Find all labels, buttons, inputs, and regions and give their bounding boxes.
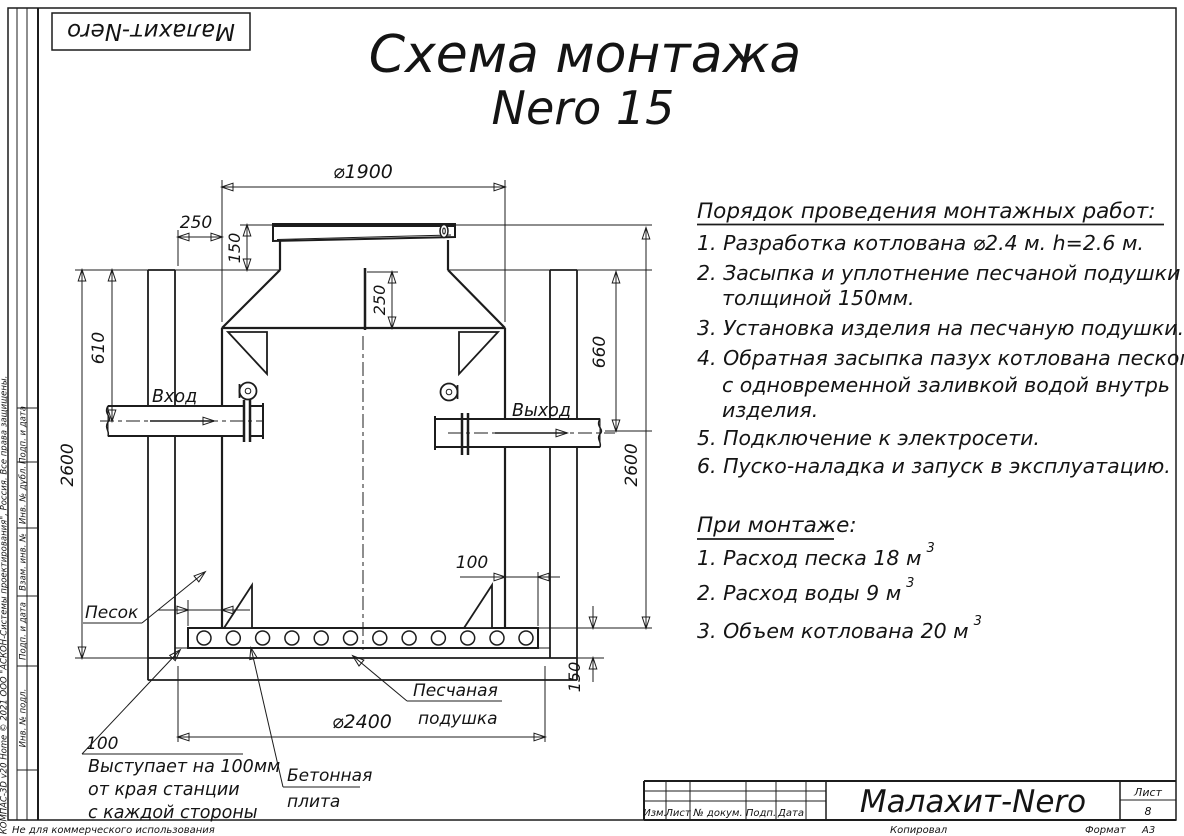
- during-item: 2. Расход воды 9 м3: [697, 576, 914, 605]
- instruction-line: 5. Подключение к электросети.: [697, 426, 1040, 450]
- dim-cushion-thickness: 150: [565, 662, 584, 693]
- lifting-eye-left: [240, 383, 257, 400]
- dim-pit-depth-left: 2600: [58, 443, 78, 486]
- col-sign: Подп.: [746, 808, 776, 819]
- during-item-sup: 3: [974, 614, 982, 629]
- dim-lid-height: 150: [225, 233, 244, 264]
- instruction-line: 6. Пуско-наладка и запуск в эксплуатацию…: [697, 454, 1171, 478]
- stamp-cell-label: Подп. и дата: [19, 406, 29, 464]
- drawing-title: Схема монтажа Nero 15: [369, 25, 802, 135]
- tank-lid: [273, 224, 455, 241]
- plate-label-1: Бетонная: [287, 766, 372, 786]
- sand-backfill-left: [175, 270, 280, 648]
- instruction-line: 1. Разработка котлована ⌀2.4 м. h=2.6 м.: [697, 231, 1144, 255]
- earth-floor: [148, 658, 577, 680]
- instruction-line: изделия.: [722, 398, 818, 422]
- gusset-upper-right: [459, 332, 498, 374]
- during-heading: При монтаже:: [697, 513, 857, 538]
- col-date: Дата: [777, 808, 804, 819]
- during-item: 1. Расход песка 18 м3: [697, 541, 935, 570]
- stamp-cell-label: Инв. № подл.: [19, 689, 29, 748]
- inlet-pipe: Вход: [100, 387, 263, 442]
- software-copyright: КОМПАС-3D v20 Home © 2021 ООО "АСКОН-Сис…: [0, 376, 10, 835]
- logo-stamp: Малахит-Nero: [52, 13, 250, 50]
- title-line-1: Схема монтажа: [369, 25, 802, 85]
- gusset-upper-left: [228, 332, 267, 374]
- col-doc: № докум.: [692, 808, 742, 819]
- dim-pit-diameter: ⌀2400: [332, 711, 392, 733]
- logo-text: Малахит-Nero: [67, 18, 235, 44]
- col-izm: Изм.: [643, 808, 667, 819]
- dim-plate-overhang: 100: [456, 553, 488, 573]
- dim-neck-depth: 250: [370, 285, 389, 316]
- leader-labels: Песок Песчаная подушка Бетонная плита 10…: [82, 572, 502, 823]
- overhang-note-3: с каждой стороны: [88, 803, 258, 823]
- col-list: Лист: [664, 808, 692, 819]
- sheet-number: 8: [1145, 805, 1152, 818]
- title-line-2: Nero 15: [492, 81, 675, 135]
- overhang-note-2: от края станции: [88, 780, 240, 800]
- sand-backfill-right: [448, 270, 550, 648]
- gusset-lower-left: [224, 585, 252, 628]
- overhang-note-1: Выступает на 100мм: [88, 757, 280, 777]
- dim-top-diameter: ⌀1900: [333, 161, 393, 183]
- format-label: Формат: [1085, 825, 1127, 836]
- lid-handle: [440, 225, 448, 238]
- tank-shoulder-right: [448, 270, 505, 328]
- instruction-line: толщиной 150мм.: [722, 286, 915, 310]
- dim-pit-depth-right: 2600: [622, 443, 642, 486]
- installation-instructions: Порядок проведения монтажных работ: 1. Р…: [697, 199, 1184, 643]
- lifting-eye-right: [441, 384, 458, 401]
- dim-backfill-width: 250: [180, 213, 212, 233]
- outlet-pipe: Выход: [435, 401, 615, 455]
- plate-rebar: [197, 631, 533, 645]
- cushion-label-2: подушка: [418, 709, 498, 729]
- stamp-cell-label: Подп. и дата: [19, 602, 29, 660]
- stamp-column: Подп. и дата Инв. № дубл. Взам. инв. № П…: [0, 376, 29, 835]
- tank-shoulder-left: [222, 270, 280, 328]
- during-item-sup: 3: [926, 541, 934, 556]
- stamp-cell-label: Взам. инв. №: [19, 533, 29, 591]
- inlet-label: Вход: [152, 387, 197, 407]
- dim-inlet-depth: 610: [89, 332, 109, 364]
- stamp-cell-label: Инв. № дубл.: [19, 466, 29, 524]
- sheet-label: Лист: [1133, 786, 1162, 799]
- footer-note: Не для коммерческого использования: [12, 825, 215, 836]
- drawing-sheet: Подп. и дата Инв. № дубл. Взам. инв. № П…: [0, 0, 1184, 836]
- instruction-line: 3. Установка изделия на песчаную подушки…: [697, 316, 1184, 340]
- product-name: Малахит-Nero: [860, 784, 1086, 820]
- title-block: Изм. Лист № докум. Подп. Дата Малахит-Ne…: [643, 781, 1176, 836]
- plate-label-2: плита: [287, 792, 340, 812]
- outlet-label: Выход: [512, 401, 571, 421]
- instructions-heading: Порядок проведения монтажных работ:: [697, 199, 1155, 224]
- dim-outlet-depth: 660: [590, 336, 610, 368]
- during-item: 3. Объем котлована 20 м3: [697, 614, 982, 643]
- during-item-text: 2. Расход воды 9 м: [697, 581, 901, 605]
- gusset-lower-right: [464, 585, 492, 628]
- instruction-line: 2. Засыпка и уплотнение песчаной подушки: [697, 261, 1180, 285]
- copied-by: Копировал: [890, 825, 948, 836]
- sand-label: Песок: [85, 603, 139, 623]
- instruction-line: с одновременной заливкой водой внутрь: [722, 373, 1170, 397]
- cad-canvas: Подп. и дата Инв. № дубл. Взам. инв. № П…: [0, 0, 1184, 836]
- cushion-label-1: Песчаная: [413, 681, 498, 701]
- instruction-line: 4. Обратная засыпка пазух котлована песк…: [697, 346, 1184, 370]
- format-value: А3: [1141, 825, 1155, 836]
- during-item-text: 1. Расход песка 18 м: [697, 546, 921, 570]
- during-item-sup: 3: [906, 576, 914, 591]
- during-item-text: 3. Объем котлована 20 м: [697, 619, 969, 643]
- earth-wall-right: [550, 270, 577, 658]
